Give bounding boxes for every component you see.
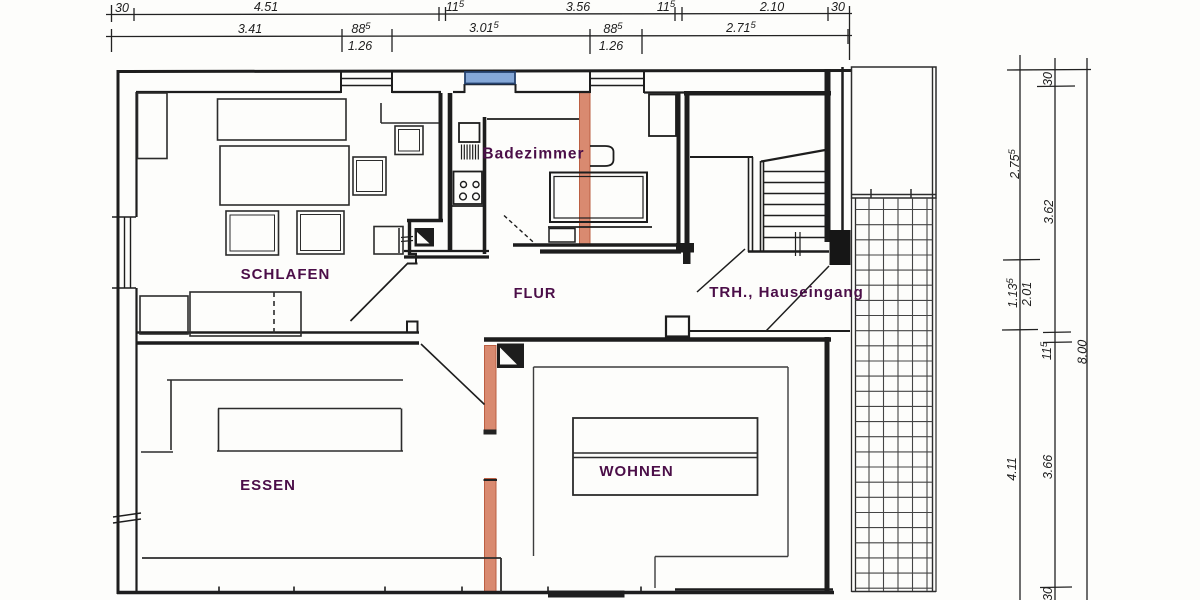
svg-text:30: 30 <box>1041 72 1055 86</box>
svg-text:3.62: 3.62 <box>1042 200 1056 224</box>
svg-text:2.10: 2.10 <box>759 0 784 14</box>
svg-text:4.11: 4.11 <box>1005 457 1019 480</box>
svg-text:3.56: 3.56 <box>566 0 590 14</box>
svg-text:TRH., Hauseingang: TRH., Hauseingang <box>709 284 864 301</box>
svg-text:30: 30 <box>115 1 129 15</box>
svg-text:30: 30 <box>1041 587 1055 600</box>
svg-text:3.41: 3.41 <box>238 22 262 36</box>
svg-text:FLUR: FLUR <box>514 286 557 302</box>
svg-text:8.00: 8.00 <box>1076 340 1090 364</box>
svg-text:1.26: 1.26 <box>348 39 372 53</box>
svg-text:ESSEN: ESSEN <box>240 477 296 494</box>
svg-text:4.51: 4.51 <box>254 0 278 14</box>
svg-text:30: 30 <box>831 0 845 14</box>
svg-text:1.26: 1.26 <box>599 39 623 53</box>
svg-text:SCHLAFEN: SCHLAFEN <box>241 266 331 283</box>
svg-text:WOHNEN: WOHNEN <box>599 463 673 480</box>
svg-text:2.01: 2.01 <box>1020 282 1034 307</box>
svg-text:3.66: 3.66 <box>1041 455 1055 479</box>
svg-text:Badezimmer: Badezimmer <box>482 146 584 163</box>
